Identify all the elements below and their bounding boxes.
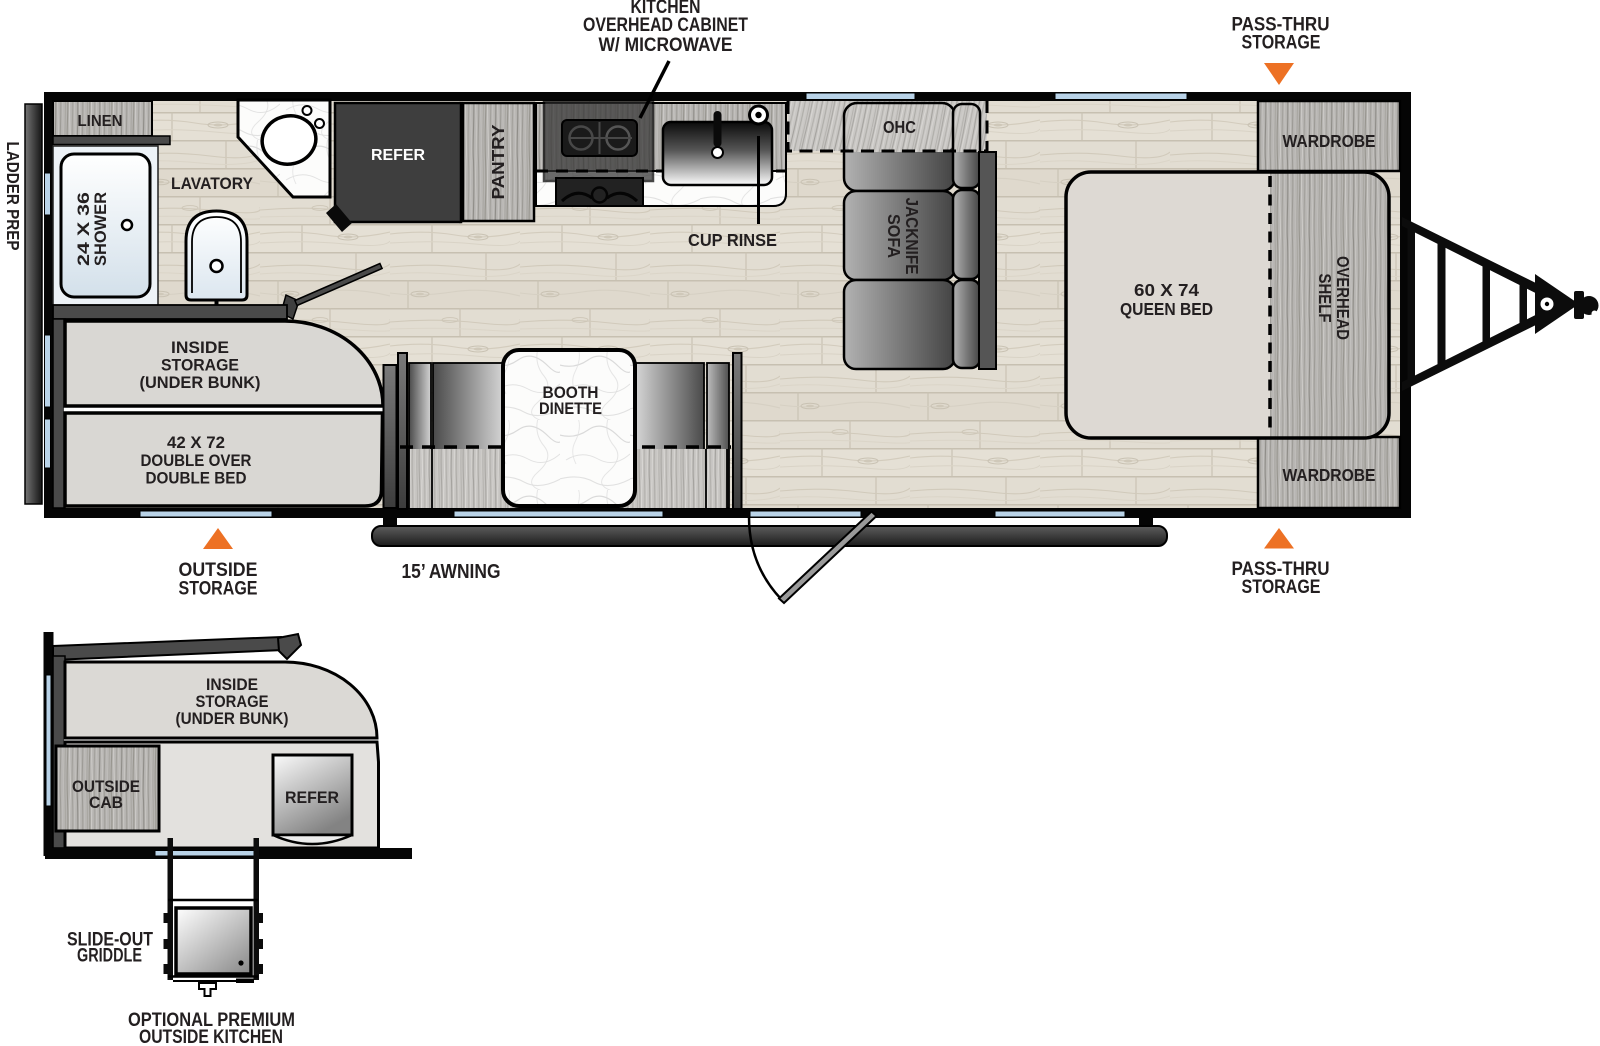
svg-text:STORAGE: STORAGE	[179, 578, 258, 600]
svg-text:(UNDER BUNK): (UNDER BUNK)	[140, 373, 261, 392]
svg-text:CUP RINSE: CUP RINSE	[688, 230, 777, 250]
svg-text:W/ MICROWAVE: W/ MICROWAVE	[599, 34, 733, 56]
svg-text:REFER: REFER	[285, 789, 339, 807]
svg-text:GRIDDLE: GRIDDLE	[77, 946, 142, 967]
svg-text:INSIDE: INSIDE	[171, 338, 229, 357]
svg-text:STORAGE: STORAGE	[1242, 576, 1321, 598]
svg-text:LADDER PREP: LADDER PREP	[3, 142, 23, 251]
svg-text:SHOWER: SHOWER	[92, 192, 110, 266]
svg-text:24 X 36: 24 X 36	[75, 192, 93, 266]
svg-text:LAVATORY: LAVATORY	[171, 175, 253, 193]
svg-text:OVERHEAD: OVERHEAD	[1333, 256, 1353, 340]
svg-text:OUTSIDE KITCHEN: OUTSIDE KITCHEN	[139, 1026, 283, 1046]
svg-text:LINEN: LINEN	[78, 113, 123, 130]
svg-text:JACKNIFE: JACKNIFE	[902, 198, 922, 275]
svg-text:WARDROBE: WARDROBE	[1283, 465, 1376, 485]
svg-text:42 X 72: 42 X 72	[167, 433, 225, 452]
svg-text:DINETTE: DINETTE	[539, 399, 602, 418]
svg-text:OHC: OHC	[883, 117, 916, 137]
svg-text:PANTRY: PANTRY	[488, 124, 508, 199]
svg-text:SHELF: SHELF	[1315, 274, 1335, 323]
svg-text:QUEEN BED: QUEEN BED	[1120, 299, 1213, 319]
svg-text:DOUBLE OVER: DOUBLE OVER	[141, 451, 252, 470]
svg-text:STORAGE: STORAGE	[1242, 32, 1321, 54]
svg-text:DOUBLE BED: DOUBLE BED	[146, 469, 247, 488]
svg-text:SOFA: SOFA	[884, 214, 904, 258]
svg-text:OVERHEAD CABINET: OVERHEAD CABINET	[583, 14, 748, 36]
svg-text:REFER: REFER	[371, 147, 425, 164]
svg-text:WARDROBE: WARDROBE	[1283, 131, 1376, 151]
svg-text:CAB: CAB	[89, 794, 123, 812]
svg-text:60 X 74: 60 X 74	[1134, 280, 1199, 300]
svg-text:15’ AWNING: 15’ AWNING	[402, 561, 501, 583]
svg-text:(UNDER BUNK): (UNDER BUNK)	[176, 709, 289, 728]
svg-text:STORAGE: STORAGE	[161, 356, 239, 375]
